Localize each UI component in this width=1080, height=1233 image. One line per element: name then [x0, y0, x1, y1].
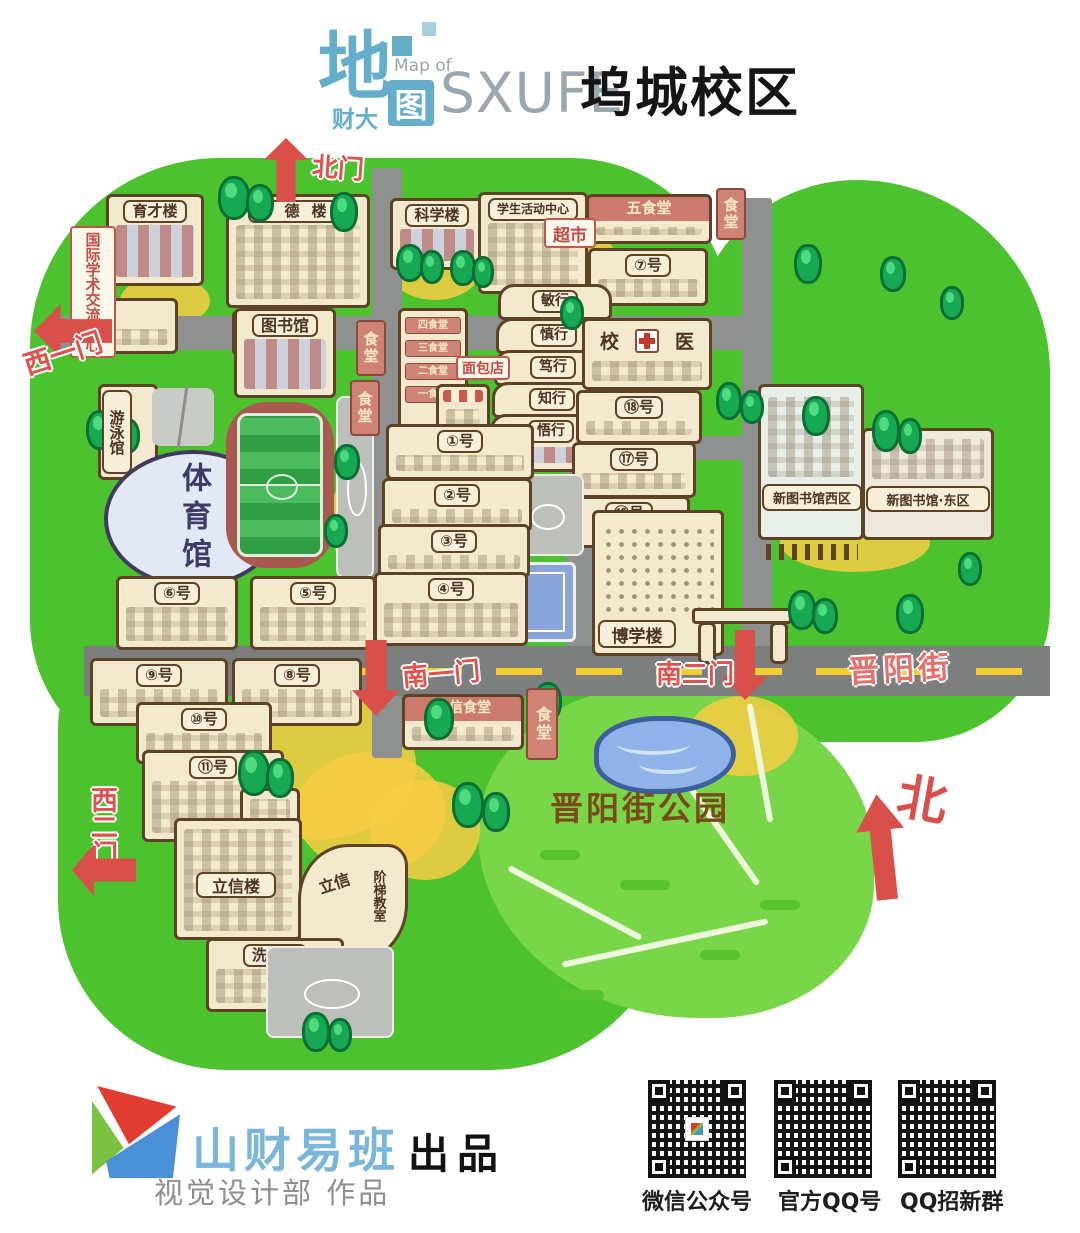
building-library: 图书馆: [234, 308, 336, 398]
building-label: 悟行: [528, 420, 574, 443]
windows: [396, 455, 524, 471]
windows: [598, 279, 698, 297]
qr-finder-icon: [774, 1080, 796, 1102]
windows: [116, 225, 194, 277]
windows: [592, 361, 702, 381]
canteen-floor-label: 三食堂: [405, 340, 461, 357]
soccer-pitch: [237, 413, 323, 557]
produced-by-label: 出品: [408, 1120, 506, 1180]
north-gate-label: 北门: [311, 146, 365, 187]
tree: [716, 382, 742, 420]
tree: [482, 792, 510, 832]
tree: [452, 782, 484, 828]
windows: [586, 421, 692, 435]
yiban-logo-icon: [92, 1086, 180, 1180]
building-no18: ⑱号: [576, 390, 702, 444]
building-label: ⑥号: [154, 582, 200, 605]
tree: [246, 184, 274, 222]
qr-label-qq-group: QQ招新群: [900, 1184, 1003, 1216]
building-label: ⑱号: [615, 396, 663, 419]
tree: [940, 286, 964, 320]
tree: [812, 598, 838, 634]
grass-tuft: [620, 880, 670, 890]
building-no3: ③号: [378, 524, 530, 578]
qr-finder-icon: [898, 1156, 920, 1178]
windows: [388, 555, 520, 569]
tree: [420, 250, 444, 284]
lixinlou-label: 立信楼: [196, 872, 276, 898]
tree: [328, 1018, 352, 1052]
qr-code-qq: [774, 1080, 872, 1178]
clinic-label: 校 医: [585, 327, 709, 354]
windows: [236, 225, 360, 299]
tree: [266, 758, 294, 798]
south-gate2-label: 南二门: [656, 654, 734, 691]
tree: [880, 256, 906, 292]
tree: [958, 552, 982, 586]
qr-finder-icon: [648, 1080, 670, 1102]
qr-finder-icon: [724, 1080, 746, 1102]
windows: [126, 607, 228, 641]
building-label: 五食堂: [619, 199, 678, 218]
south-gate2-pillar: [770, 622, 788, 664]
building-label: ⑨号: [136, 664, 182, 687]
building-label: ③号: [431, 530, 477, 553]
park-name: 晋阳街公园: [550, 782, 730, 830]
boxue-label: 博学楼: [598, 620, 676, 648]
building-label: ⑦号: [625, 254, 671, 277]
windows: [244, 339, 326, 389]
tree: [424, 698, 454, 740]
tree: [330, 192, 358, 232]
sign-bakery: 面包店: [456, 356, 510, 380]
building-label: ⑪号: [189, 756, 237, 779]
tree: [334, 444, 360, 480]
building-label: 图书馆: [252, 314, 318, 337]
building-no1: ①号: [386, 424, 534, 480]
page-title-campus: 坞城校区: [580, 66, 800, 122]
compass-north-label: 北: [892, 756, 954, 836]
building-minxing: 敏行: [498, 284, 612, 320]
tree: [896, 594, 924, 634]
lecture-hall-label: 阶梯教室: [366, 850, 390, 942]
qr-finder-icon: [850, 1080, 872, 1102]
building-label: ②号: [434, 484, 480, 507]
grass-tuft: [560, 990, 604, 1000]
clinic-char-right: 医: [675, 327, 694, 354]
building-canteen5: 五食堂: [586, 194, 712, 244]
tree: [898, 418, 922, 454]
credit-line: 视觉设计部 作品: [154, 1170, 390, 1212]
logo-di-char: 地: [318, 30, 392, 104]
parking-lot: [152, 388, 214, 446]
tree: [740, 390, 764, 424]
tree: [802, 396, 830, 436]
grass-tuft: [540, 850, 580, 860]
windows: [446, 409, 480, 425]
pool-label: 游泳馆: [102, 390, 132, 474]
tree: [324, 514, 348, 548]
building-yucai: 育才楼: [106, 194, 204, 286]
sign-canteen-vertical: 食堂: [716, 188, 746, 240]
grass-tuft: [760, 900, 800, 910]
clinic-char-left: 校: [600, 327, 619, 354]
qr-label-qq: 官方QQ号: [778, 1184, 881, 1216]
building-no17: ⑰号: [572, 442, 696, 498]
street-name: 晋阳街: [847, 641, 954, 691]
awning: [443, 390, 483, 402]
xinlib-west-label: 新图书馆西区: [762, 484, 862, 511]
building-label: 笃行: [530, 356, 576, 379]
tree: [472, 256, 494, 288]
building-clinic: 校 医: [582, 318, 712, 390]
building-lixin-canteen: 立信食堂: [402, 694, 524, 750]
qr-code-qq-group: [898, 1080, 996, 1178]
windows: [596, 227, 702, 235]
red-cross-icon: [635, 329, 659, 353]
building-no5: ⑤号: [250, 576, 376, 650]
qr-center-logo-icon: [685, 1117, 709, 1141]
tree: [794, 244, 822, 284]
logo-tu-char: 图: [388, 80, 434, 126]
sign-canteen-vertical: 食堂: [526, 688, 558, 760]
xinlib-east-label: 新图书馆·东区: [866, 486, 990, 512]
windows: [602, 525, 714, 619]
campus-map-poster: 地 财大 Map of 图 SXUFE 坞城校区 育才楼 国际学术交流中心 修德…: [0, 0, 1080, 1233]
qr-finder-icon: [648, 1156, 670, 1178]
tree: [302, 1012, 330, 1052]
building-label: 育才楼: [123, 200, 186, 223]
qr-finder-icon: [774, 1156, 796, 1178]
grass-tuft: [700, 950, 740, 960]
building-label: 科学楼: [405, 204, 468, 227]
logo-square-icon: [392, 36, 412, 56]
building-label: ⑤号: [290, 582, 336, 605]
canteen-floor-label: 四食堂: [405, 317, 461, 334]
building-no6: ⑥号: [116, 576, 238, 650]
canteen-floor-label: 二食堂: [405, 363, 461, 380]
windows: [582, 473, 686, 489]
tree: [872, 410, 900, 452]
windows: [384, 603, 518, 637]
gym-label: 体育馆: [171, 462, 215, 576]
building-label: ④号: [428, 578, 474, 601]
building-no4: ④号: [374, 572, 528, 646]
building-label: ⑧号: [274, 664, 320, 687]
windows: [392, 509, 522, 523]
building-label: 知行: [529, 388, 575, 411]
logo-square-small-icon: [422, 22, 436, 36]
logo-caida: 财大: [332, 100, 378, 134]
qr-code-wechat: [648, 1080, 746, 1178]
tree: [560, 296, 584, 330]
sign-supermarket: 超市: [544, 218, 596, 248]
south-gate1-label: 南一门: [401, 651, 482, 695]
qr-label-wechat: 微信公众号: [642, 1184, 752, 1216]
sign-canteen-vertical: 食堂: [350, 380, 380, 436]
building-label: ⑰号: [610, 448, 658, 471]
windows: [260, 607, 366, 641]
soccer-field: [226, 402, 334, 568]
building-label: ⑩号: [181, 708, 227, 731]
fence: [766, 544, 858, 560]
qr-finder-icon: [974, 1080, 996, 1102]
building-label: ①号: [437, 430, 483, 453]
sign-canteen-vertical: 食堂: [356, 320, 386, 376]
qr-finder-icon: [898, 1080, 920, 1102]
